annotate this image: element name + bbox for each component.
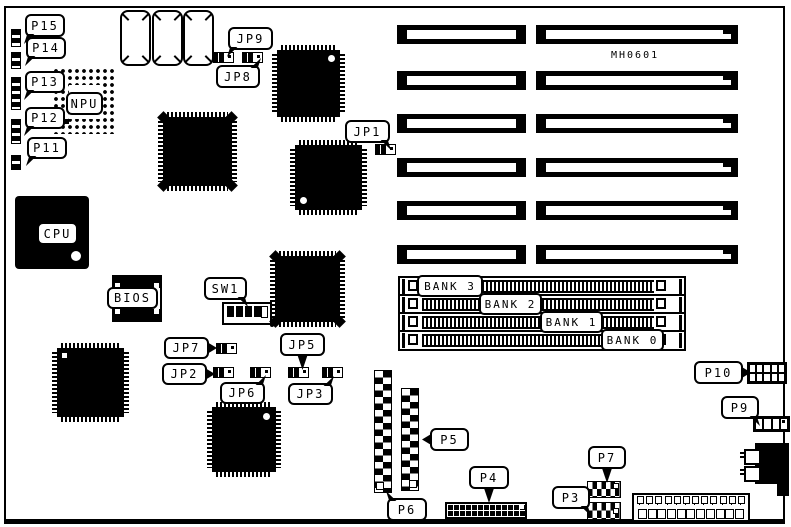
- chip-pins: [61, 417, 120, 422]
- switch-position: [254, 306, 261, 317]
- asic-chip: [57, 348, 124, 417]
- chip-pins: [340, 260, 345, 318]
- pin-cell: [735, 509, 744, 519]
- connector-p13: [11, 77, 21, 110]
- expansion-slot: [536, 158, 738, 177]
- callout-text: JP9: [237, 32, 265, 46]
- corner-mark: [142, 55, 150, 63]
- callout-text: P10: [705, 366, 733, 380]
- jumper-jp9: [213, 52, 234, 63]
- corner-mark: [174, 13, 182, 21]
- callout-text: P3: [562, 491, 580, 505]
- pin-cell: [648, 509, 657, 519]
- open-pin: [613, 483, 619, 489]
- jumper-pin: [228, 370, 231, 373]
- callout-sw1: SW1: [204, 277, 247, 300]
- pin1-marker: [300, 197, 307, 204]
- callout-p13: P13: [25, 71, 65, 93]
- bank0-label: BANK 0: [601, 329, 664, 351]
- clamp: [692, 496, 699, 504]
- pin-cell: [750, 374, 755, 381]
- callout-jp6: JP6: [220, 382, 265, 404]
- pin-cell: [667, 509, 676, 519]
- bank-label-text: BANK 3: [424, 280, 476, 293]
- expansion-slot: [536, 25, 738, 44]
- corner-marks: [163, 117, 232, 186]
- slot-opening: [546, 163, 723, 172]
- open-pin: [409, 480, 417, 488]
- pin-cell: [677, 509, 686, 519]
- clamp: [729, 496, 736, 504]
- pin-cell: [757, 374, 762, 381]
- corner-mark: [154, 13, 162, 21]
- pin-cell: [725, 509, 734, 519]
- notch: [115, 309, 120, 314]
- capacitor: [120, 10, 151, 66]
- asic-chip: [212, 407, 276, 472]
- callout-text: P12: [31, 111, 59, 125]
- callout-text: P6: [398, 503, 416, 517]
- socket-clip: [656, 280, 666, 291]
- callout-jp7: JP7: [164, 337, 209, 359]
- corner-mark: [174, 55, 182, 63]
- chip-pins: [290, 149, 295, 206]
- socket-end: [679, 333, 682, 348]
- slot-key: [722, 34, 731, 39]
- pin-cell: [764, 419, 770, 429]
- capacitor: [183, 10, 214, 66]
- socket-end: [402, 315, 405, 330]
- chip-pins: [216, 472, 272, 477]
- part-number-text: MH0601: [611, 50, 659, 61]
- expansion-slot: [397, 25, 526, 44]
- callout-p7: P7: [588, 446, 626, 469]
- slot-opening: [546, 250, 723, 259]
- asic-chip: [277, 50, 340, 117]
- callout-text: P13: [31, 75, 59, 89]
- clamp: [655, 496, 662, 504]
- switch-position: [245, 306, 252, 317]
- connector-p11: [11, 155, 21, 170]
- chip-pins: [281, 117, 336, 122]
- chip-pins: [52, 352, 57, 413]
- socket-clip: [656, 316, 666, 327]
- socket-end: [402, 297, 405, 312]
- connector-p3: [587, 502, 621, 520]
- chip-pins: [207, 411, 212, 468]
- callout-p6: P6: [387, 498, 427, 521]
- socket-end: [679, 297, 682, 312]
- pin1-marker: [71, 251, 81, 261]
- pin-cell: [657, 509, 666, 519]
- callout-text: JP3: [297, 387, 325, 401]
- pin1-marker: [328, 55, 335, 62]
- chip-pins: [272, 54, 277, 113]
- switch-position: [227, 306, 234, 317]
- pin-cell: [686, 509, 695, 519]
- pin-cell: [696, 509, 705, 519]
- power-plug-tab: [744, 466, 761, 482]
- switch-position: [236, 306, 243, 317]
- slot-opening: [407, 76, 516, 85]
- connector-p6: [374, 370, 392, 493]
- slot-opening: [546, 206, 723, 215]
- callout-text: P4: [480, 471, 498, 485]
- callout-text: NPU: [71, 97, 99, 111]
- callout-p11: P11: [27, 137, 67, 159]
- callout-jp5: JP5: [280, 333, 325, 356]
- socket-clip: [408, 298, 418, 309]
- clamp: [646, 496, 653, 504]
- connector-p7: [587, 481, 621, 498]
- jumper-jp5: [288, 367, 309, 378]
- slot-opening: [546, 76, 723, 85]
- connector-p4: [445, 502, 527, 519]
- callout-cpu: CPU: [37, 222, 78, 245]
- corner-mark: [142, 13, 150, 21]
- callout-text: P14: [32, 41, 60, 55]
- connector-p12: [11, 119, 21, 144]
- callout-text: P5: [440, 433, 458, 447]
- slot-opening: [407, 119, 516, 128]
- callout-npu: NPU: [66, 92, 103, 115]
- clamp-row: [637, 496, 745, 505]
- callout-text: CPU: [44, 227, 72, 241]
- callout-text: JP1: [354, 125, 382, 139]
- pin-cell: [764, 374, 769, 381]
- expansion-slot: [536, 114, 738, 133]
- clamp: [720, 496, 727, 504]
- bank3-label: BANK 3: [417, 275, 483, 297]
- corner-mark: [205, 55, 213, 63]
- jumper-pin: [265, 370, 268, 373]
- asic-chip: [295, 145, 362, 210]
- callout-p15: P15: [25, 14, 65, 37]
- clamp: [710, 496, 717, 504]
- connector-p10: [747, 362, 787, 384]
- expansion-slot: [536, 71, 738, 90]
- jumper-jp3: [322, 367, 343, 378]
- capacitor: [152, 10, 183, 66]
- chip-pins: [61, 343, 120, 348]
- open-pin: [520, 505, 524, 509]
- jumper-jp2: [213, 367, 234, 378]
- corner-mark: [185, 55, 193, 63]
- chip-pins: [124, 352, 129, 413]
- slot-opening: [407, 163, 516, 172]
- pin-cell: [773, 419, 779, 429]
- jumper-pin: [337, 370, 340, 373]
- callout-text: JP7: [173, 341, 201, 355]
- expansion-slot: [536, 245, 738, 264]
- socket-clip: [656, 298, 666, 309]
- motherboard-diagram: MH0601 BANK 3 BANK 2 BANK 1 BANK 0: [0, 0, 791, 527]
- expansion-slot: [397, 201, 526, 220]
- open-pin: [376, 482, 384, 490]
- callout-p9: P9: [721, 396, 759, 419]
- callout-p4: P4: [469, 466, 509, 489]
- open-pin: [613, 508, 619, 514]
- jumper-pin: [303, 370, 306, 373]
- connector-p15: [11, 29, 21, 47]
- pin-cell: [757, 365, 762, 372]
- pin-cell: [764, 365, 769, 372]
- chip-pins: [167, 186, 228, 191]
- pin1-marker: [62, 353, 67, 358]
- slot-key: [722, 80, 731, 85]
- callout-text: SW1: [212, 282, 240, 296]
- pin1-marker: [263, 413, 270, 420]
- expansion-slot: [397, 158, 526, 177]
- callout-text: JP6: [229, 386, 257, 400]
- callout-p3: P3: [552, 486, 590, 509]
- bank-label-text: BANK 0: [607, 334, 659, 347]
- bank2-label: BANK 2: [479, 293, 542, 315]
- pin-cell: [750, 365, 755, 372]
- callout-p12: P12: [25, 107, 65, 129]
- socket-end: [402, 333, 405, 348]
- chip-pins: [279, 322, 336, 327]
- notch: [154, 309, 159, 314]
- socket-pins: [422, 316, 654, 329]
- pin-cell: [781, 419, 787, 429]
- clamp: [674, 496, 681, 504]
- socket-end: [402, 279, 405, 294]
- clamp: [701, 496, 708, 504]
- pin-cell: [772, 365, 777, 372]
- slot-key: [722, 123, 731, 128]
- slot-opening: [407, 206, 516, 215]
- pin-cell: [779, 374, 784, 381]
- slot-key: [722, 254, 731, 259]
- jumper-jp7: [216, 343, 237, 354]
- jumper-jp6: [250, 367, 271, 378]
- socket-clip: [408, 316, 418, 327]
- pin-cell: [706, 509, 715, 519]
- callout-text: JP5: [289, 338, 317, 352]
- clamp: [738, 496, 745, 504]
- chip-pins: [362, 149, 367, 206]
- callout-jp1: JP1: [345, 120, 390, 143]
- jumper-pin: [231, 346, 234, 349]
- socket-end: [679, 279, 682, 294]
- power-plug-tab: [744, 449, 761, 465]
- corner-mark: [185, 13, 193, 21]
- clamp: [637, 496, 644, 504]
- corner-mark: [154, 55, 162, 63]
- connector-p5: [401, 388, 419, 491]
- corner-mark: [205, 13, 213, 21]
- pin-cell: [638, 509, 647, 519]
- callout-text: BIOS: [114, 291, 151, 305]
- slot-opening: [407, 250, 516, 259]
- callout-text: P15: [31, 19, 59, 33]
- expansion-slot: [397, 245, 526, 264]
- callout-bios: BIOS: [107, 287, 158, 309]
- slot-key: [722, 210, 731, 215]
- pin-cell: [779, 365, 784, 372]
- socket-end: [679, 315, 682, 330]
- corner-mark: [122, 13, 130, 21]
- chip-pins: [276, 411, 281, 468]
- connector-p14: [11, 52, 21, 69]
- callout-jp2: JP2: [162, 363, 207, 385]
- slot-opening: [546, 119, 723, 128]
- bank-label-text: BANK 2: [485, 298, 537, 311]
- bank1-label: BANK 1: [540, 311, 603, 333]
- asic-chip: [275, 256, 340, 322]
- pin-cell: [772, 374, 777, 381]
- callout-jp8: JP8: [216, 65, 260, 88]
- callout-text: P7: [598, 451, 616, 465]
- chip-pins: [299, 210, 358, 215]
- slot-opening: [407, 30, 516, 39]
- callout-p5: P5: [430, 428, 469, 451]
- chip-pins: [281, 45, 336, 50]
- chip-pins: [232, 121, 237, 182]
- socket-clip: [408, 334, 418, 345]
- jumper-jp1: [375, 144, 396, 155]
- pin-cell: [716, 509, 725, 519]
- terminal-strip-connector: [632, 493, 750, 522]
- slot-key: [722, 167, 731, 172]
- expansion-slot: [397, 114, 526, 133]
- asic-chip: [163, 117, 232, 186]
- callout-text: JP8: [224, 70, 252, 84]
- callout-text: JP2: [171, 367, 199, 381]
- corner-marks: [275, 256, 340, 322]
- switch-position: [261, 306, 268, 318]
- expansion-slot: [397, 71, 526, 90]
- callout-jp3: JP3: [288, 383, 333, 405]
- callout-p10: P10: [694, 361, 743, 384]
- callout-p14: P14: [26, 37, 66, 59]
- expansion-slot: [536, 201, 738, 220]
- jumper-pin: [257, 55, 260, 58]
- callout-text: P11: [33, 141, 61, 155]
- clamp: [683, 496, 690, 504]
- power-connector-step: [777, 484, 789, 496]
- pin-row: [638, 509, 744, 518]
- corner-mark: [122, 55, 130, 63]
- callout-text: P9: [731, 401, 749, 415]
- bank-label-text: BANK 1: [546, 316, 598, 329]
- clamp: [665, 496, 672, 504]
- chip-pins: [340, 54, 345, 113]
- callout-jp9: JP9: [228, 27, 273, 50]
- slot-opening: [546, 30, 723, 39]
